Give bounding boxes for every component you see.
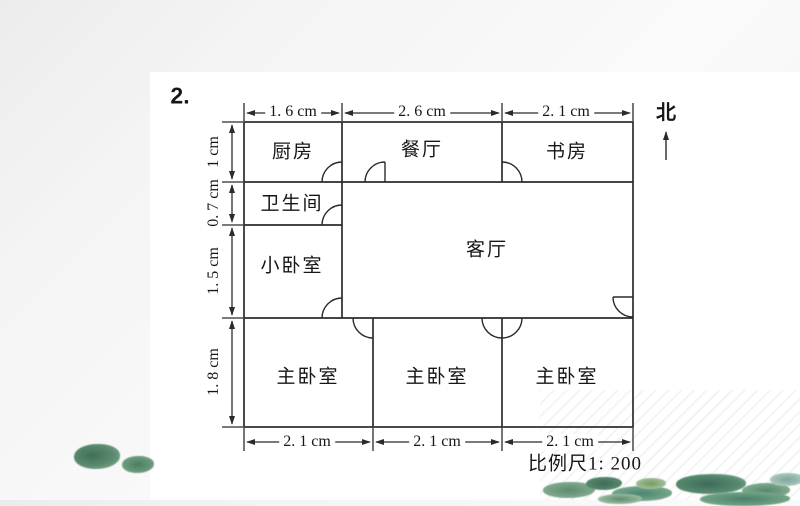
leaf-blob xyxy=(770,473,800,486)
room-label-living: 客厅 xyxy=(466,241,508,260)
dim-left-row2: 0. 7 cm xyxy=(206,176,222,230)
dim-top-kitchen: 1. 6 cm xyxy=(265,104,321,120)
item-number: 2. xyxy=(170,85,189,108)
room-label-bathroom: 卫生间 xyxy=(260,195,323,214)
door-study xyxy=(502,162,522,182)
slide-background: { "colors": { "wall_line": "#2b2b2b", "l… xyxy=(0,0,800,500)
dim-bottom-3: 2. 1 cm xyxy=(542,434,598,450)
dim-left-row4: 1. 8 cm xyxy=(206,345,222,399)
leaf-blob xyxy=(700,492,790,506)
dim-top-study: 2. 1 cm xyxy=(538,104,594,120)
door-living-room xyxy=(613,297,633,317)
dim-left-row1: 1 cm xyxy=(206,133,222,171)
door-kitchen xyxy=(322,162,342,182)
dim-left-row3: 1. 5 cm xyxy=(206,244,222,298)
dim-bottom-1: 2. 1 cm xyxy=(279,434,335,450)
door-bathroom xyxy=(322,205,342,225)
room-label-master-bedroom-2: 主卧室 xyxy=(405,368,468,387)
room-label-master-bedroom-1: 主卧室 xyxy=(276,368,339,387)
room-label-dining: 餐厅 xyxy=(401,141,443,160)
door-master-bedroom-1 xyxy=(353,318,373,338)
room-label-kitchen: 厨房 xyxy=(272,143,314,162)
north-label: 北 xyxy=(656,103,676,123)
dim-bottom-2: 2. 1 cm xyxy=(409,434,465,450)
floor-plan-drawing xyxy=(0,0,800,500)
room-label-small-bedroom: 小卧室 xyxy=(260,257,323,276)
leaf-blob xyxy=(598,494,642,504)
room-label-master-bedroom-3: 主卧室 xyxy=(535,368,598,387)
scale-label: 比例尺1: 200 xyxy=(528,455,642,474)
room-label-study: 书房 xyxy=(546,143,588,162)
door-dining xyxy=(365,162,385,182)
dim-top-dining: 2. 6 cm xyxy=(394,104,450,120)
door-small-bedroom xyxy=(322,298,342,318)
